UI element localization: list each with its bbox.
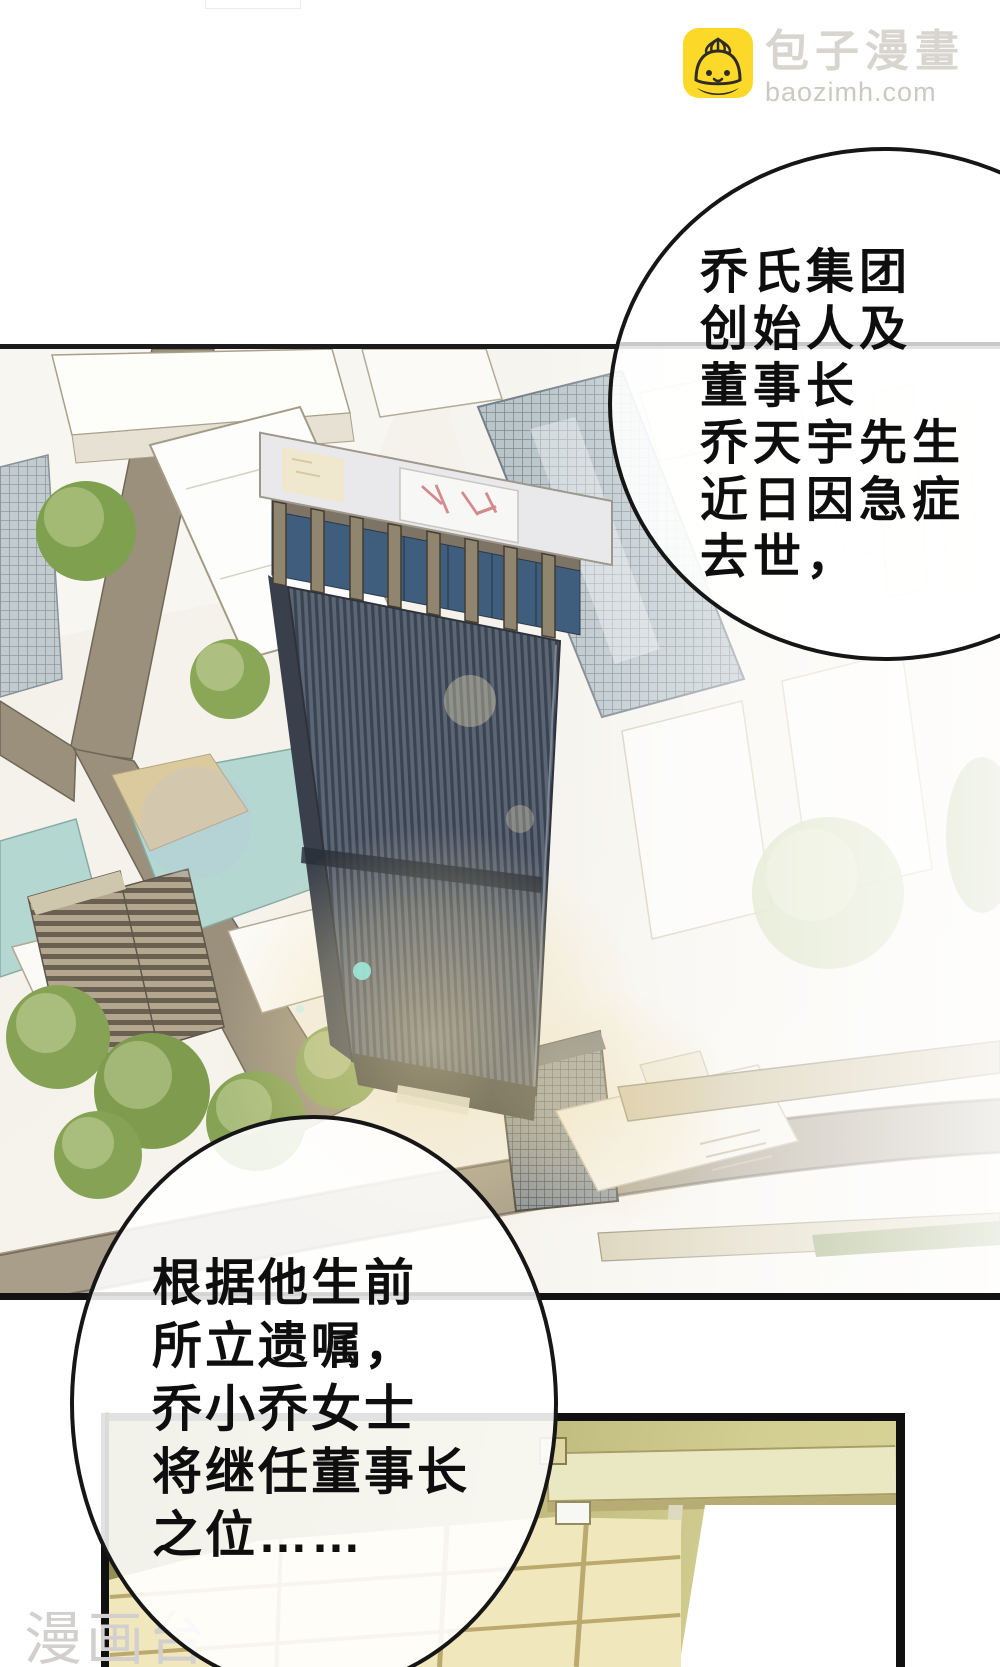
narration-text-bottom: 根据他生前 所立遗嘱， 乔小乔女士 将继任董事长 之位…… [152,1252,470,1567]
narration-line: 董事长 [700,358,965,415]
panel-border-showthrough [105,1412,109,1622]
narration-text-top: 乔氏集团 创始人及 董事长 乔天宇先生 近日因急症 去世， [700,244,965,586]
narration-line: 去世， [700,529,965,586]
site-name: 包子漫畫 [765,28,965,76]
site-domain: baozimh.com [765,77,965,107]
site-logo: 包子漫畫 baozimh.com [683,28,965,107]
narration-line: 乔天宇先生 [700,415,965,472]
narration-line: 创始人及 [700,301,965,358]
doorway [679,1505,896,1667]
baozi-bun-icon [683,28,753,102]
narration-line: 乔氏集团 [700,244,965,301]
narration-line: 根据他生前 [152,1252,470,1315]
wall-fixture [555,1501,591,1525]
page-top-notch [205,0,301,9]
narration-line: 近日因急症 [700,472,965,529]
narration-line: 之位…… [152,1504,470,1567]
comic-page[interactable]: 包子漫畫 baozimh.com [0,0,1000,1667]
narration-line: 乔小乔女士 [152,1378,470,1441]
narration-line: 将继任董事长 [152,1441,470,1504]
narration-line: 所立遗嘱， [152,1315,470,1378]
